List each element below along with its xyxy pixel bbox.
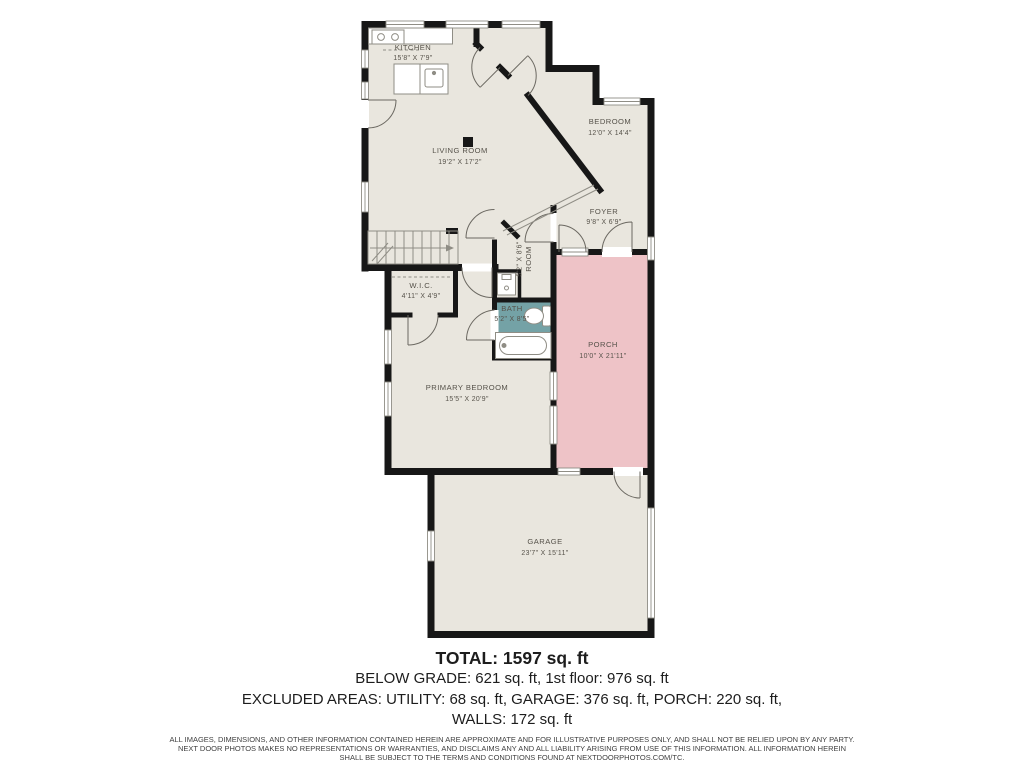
dims-room: 5'2" X 8'6": [517, 241, 524, 276]
dims-foyer: 9'8" X 6'9": [586, 219, 621, 226]
disclaimer: ALL IMAGES, DIMENSIONS, AND OTHER INFORM…: [0, 735, 1024, 762]
label-room: ROOM: [524, 246, 533, 271]
disclaimer-line-1: ALL IMAGES, DIMENSIONS, AND OTHER INFORM…: [0, 735, 1024, 744]
dims-bedroom: 12'0" X 14'4": [588, 130, 632, 137]
sink-faucet-icon: [502, 275, 511, 280]
below-grade-text: BELOW GRADE: 621 sq. ft, 1st floor: 976 …: [0, 669, 1024, 690]
dims-porch: 10'0" X 21'11": [579, 353, 626, 360]
stove-icon: [372, 30, 404, 44]
label-primary-bedroom: PRIMARY BEDROOM: [426, 383, 508, 392]
label-foyer: FOYER: [590, 207, 618, 216]
burner-icon: [378, 34, 385, 41]
disclaimer-line-3: SHALL BE SUBJECT TO THE TERMS AND CONDIT…: [0, 753, 1024, 762]
dims-kitchen: 15'8" X 7'9": [393, 55, 433, 62]
dims-wic: 4'11" X 4'9": [402, 293, 441, 300]
label-bath: BATH: [501, 304, 523, 313]
dims-primary-bedroom: 15'5" X 20'9": [445, 396, 489, 403]
label-bedroom: BEDROOM: [589, 117, 631, 126]
label-garage: GARAGE: [527, 537, 562, 546]
dims-bath: 5'2" X 8'5": [494, 316, 529, 323]
total-area-text: TOTAL: 1597 sq. ft: [0, 647, 1024, 669]
burner-icon: [392, 34, 399, 41]
label-living-room: LIVING ROOM: [432, 146, 488, 155]
faucet-icon: [432, 71, 435, 74]
label-kitchen: KITCHEN: [395, 43, 431, 52]
area-summary: TOTAL: 1597 sq. ft BELOW GRADE: 621 sq. …: [0, 647, 1024, 762]
dims-garage: 23'7" X 15'11": [521, 550, 568, 557]
sink-drain-icon: [505, 286, 509, 290]
walls-area-text: WALLS: 172 sq. ft: [0, 710, 1024, 731]
label-wic: W.I.C.: [409, 281, 432, 290]
porch-floor: [556, 252, 651, 470]
label-porch: PORCH: [588, 340, 618, 349]
disclaimer-line-2: NEXT DOOR PHOTOS MAKES NO REPRESENTATION…: [0, 744, 1024, 753]
dims-living-room: 19'2" X 17'2": [438, 159, 482, 166]
bathtub-inner: [500, 337, 547, 355]
excluded-areas-text: EXCLUDED AREAS: UTILITY: 68 sq. ft, GARA…: [0, 690, 1024, 711]
tub-faucet-icon: [502, 344, 506, 348]
